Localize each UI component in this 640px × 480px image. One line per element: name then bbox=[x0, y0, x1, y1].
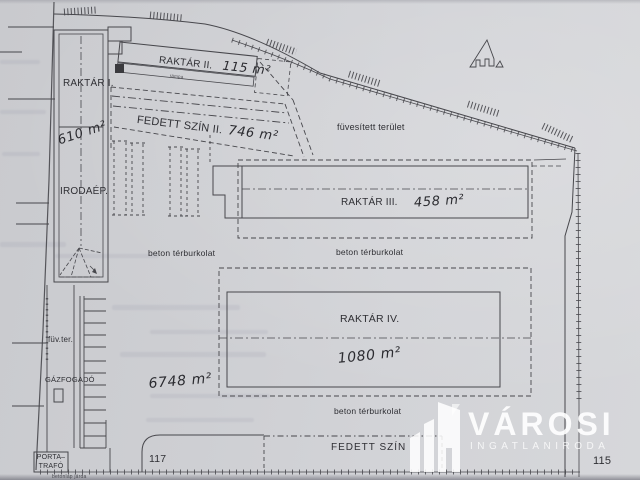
sheet-edge-line bbox=[36, 2, 54, 470]
label-beton-terburkolat-3: beton térburkolat bbox=[334, 406, 401, 416]
label-parcel-117: 117 bbox=[149, 453, 166, 465]
area-raktar-3: 458 m² bbox=[413, 192, 464, 210]
label-betonlap-jarda: betonlap járda bbox=[52, 474, 87, 480]
north-landmark-symbol bbox=[470, 40, 503, 67]
label-irodaep: IRODAÉP. bbox=[60, 186, 108, 197]
label-beton-terburkolat-1: beton térburkolat bbox=[148, 248, 215, 258]
label-beton-terburkolat-2: beton térburkolat bbox=[336, 247, 403, 257]
label-parcel-115: 115 bbox=[593, 455, 611, 467]
label-fedett-szin-bottom: FEDETT SZÍN bbox=[331, 442, 406, 453]
fedett-szin-2-canopy bbox=[111, 62, 313, 216]
label-raktar-3: RAKTÁR III. bbox=[341, 197, 398, 208]
label-porta-trafo: PORTA– TRAFÓ bbox=[34, 454, 68, 471]
label-porta-line2: TRAFÓ bbox=[34, 463, 68, 472]
label-porta-line1: PORTA– bbox=[34, 454, 68, 463]
label-group-raktar-3: RAKTÁR III. 458 m² bbox=[341, 194, 464, 209]
label-raktar-1: RAKTÁR I. bbox=[63, 78, 114, 89]
label-fuv-ter: füv.ter. bbox=[48, 335, 73, 344]
bottom-strip bbox=[142, 435, 442, 472]
label-raktar-4: RAKTÁR IV. bbox=[340, 313, 399, 325]
plot-boundary bbox=[34, 14, 580, 477]
site-plan-photo: RAKTÁR I. 610 m² IRODAÉP. RAKTÁR II. 115… bbox=[0, 0, 640, 480]
site-plan-linework bbox=[0, 0, 640, 480]
ramp-block bbox=[115, 64, 124, 73]
raktar-4-building bbox=[219, 268, 531, 396]
label-fuvesitett-terulet: füvesített terület bbox=[337, 122, 405, 132]
label-gazfogado: GÁZFOGADÓ bbox=[45, 375, 95, 384]
